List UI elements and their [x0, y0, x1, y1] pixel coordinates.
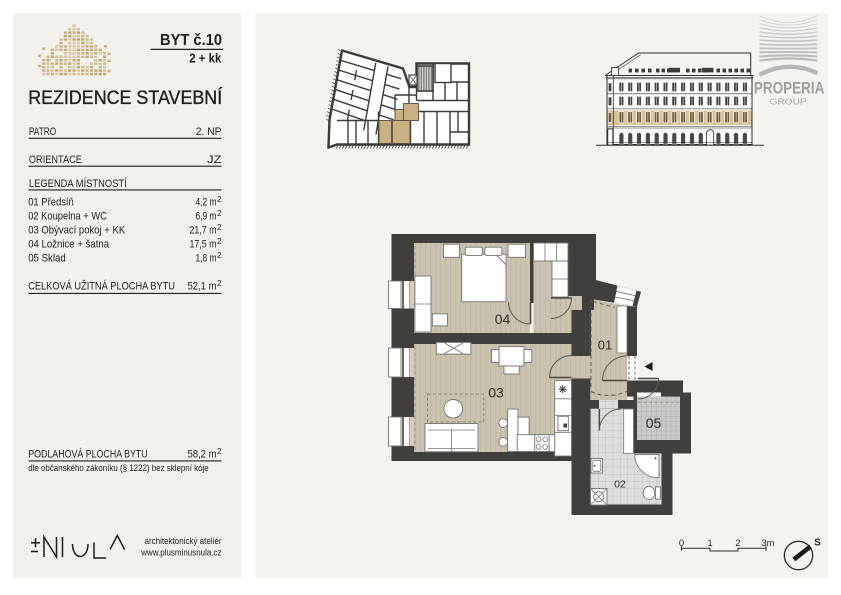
svg-text:01 Předsíň: 01 Předsíň [28, 197, 74, 209]
svg-text:03 Obývací pokoj + KK: 03 Obývací pokoj + KK [28, 225, 126, 237]
svg-text:02 Koupelna + WC: 02 Koupelna + WC [28, 211, 107, 223]
svg-text:ORIENTACE: ORIENTACE [29, 154, 82, 166]
svg-text:6,9 m: 6,9 m [196, 211, 217, 223]
svg-text:2: 2 [217, 237, 222, 246]
svg-text:01: 01 [598, 338, 612, 353]
svg-text:02: 02 [614, 479, 626, 491]
svg-text:2: 2 [217, 447, 222, 456]
svg-text:58,2 m: 58,2 m [188, 449, 217, 461]
svg-text:03: 03 [488, 384, 504, 400]
svg-text:4,2 m: 4,2 m [196, 197, 217, 209]
svg-text:PATRO: PATRO [29, 126, 57, 138]
svg-text:04 Ložnice + šatna: 04 Ložnice + šatna [28, 239, 110, 251]
svg-text:JZ: JZ [207, 154, 222, 166]
svg-text:05: 05 [646, 415, 662, 431]
svg-text:PODLAHOVÁ PLOCHA BYTU: PODLAHOVÁ PLOCHA BYTU [28, 448, 148, 461]
svg-text:S: S [814, 538, 821, 549]
svg-text:2. NP: 2. NP [196, 126, 222, 138]
svg-text:05 Sklad: 05 Sklad [28, 253, 66, 265]
svg-text:2: 2 [217, 223, 222, 232]
svg-text:BYT č.10: BYT č.10 [160, 32, 222, 49]
svg-text:2 + kk: 2 + kk [189, 52, 221, 66]
svg-text:2: 2 [217, 209, 222, 218]
svg-text:GROUP: GROUP [770, 98, 807, 107]
svg-text:3m: 3m [761, 538, 774, 549]
svg-text:REZIDENCE STAVEBNÍ: REZIDENCE STAVEBNÍ [28, 86, 223, 109]
svg-text:17,5 m: 17,5 m [190, 239, 217, 251]
svg-text:dle občanského zákoníku (§ 1: dle občanského zákoníku (§ 1222) bez skl… [28, 463, 209, 473]
svg-text:2: 2 [217, 195, 222, 204]
svg-text:04: 04 [495, 311, 511, 327]
svg-text:52,1 m: 52,1 m [188, 281, 217, 293]
svg-text:2: 2 [217, 251, 222, 260]
svg-text:2: 2 [217, 279, 222, 288]
svg-text:CELKOVÁ UŽITNÁ PLOCHA BYTU: CELKOVÁ UŽITNÁ PLOCHA BYTU [28, 280, 175, 293]
svg-text:1,8 m: 1,8 m [196, 253, 217, 265]
svg-text:LEGENDA MÍSTNOSTÍ: LEGENDA MÍSTNOSTÍ [29, 177, 128, 190]
svg-text:1: 1 [707, 538, 712, 549]
svg-text:www.plusminusnula.cz: www.plusminusnula.cz [140, 548, 221, 558]
svg-text:PROPERIA: PROPERIA [754, 80, 825, 98]
svg-text:architektonický ateliér: architektonický ateliér [145, 536, 222, 546]
svg-text:21,7 m: 21,7 m [190, 225, 217, 237]
svg-text:2: 2 [735, 538, 740, 549]
